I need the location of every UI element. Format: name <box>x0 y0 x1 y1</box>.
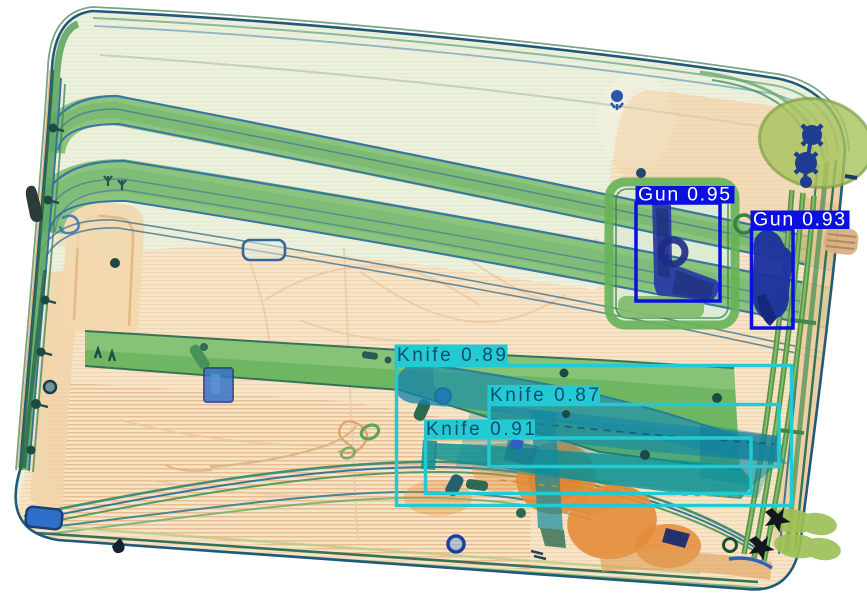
svg-text:Gun 0.93: Gun 0.93 <box>753 209 847 231</box>
svg-text:Knife 0.89: Knife 0.89 <box>397 345 509 366</box>
svg-text:Gun 0.95: Gun 0.95 <box>638 184 732 206</box>
svg-text:Knife 0.91: Knife 0.91 <box>426 419 538 440</box>
svg-text:Knife 0.87: Knife 0.87 <box>490 385 602 406</box>
